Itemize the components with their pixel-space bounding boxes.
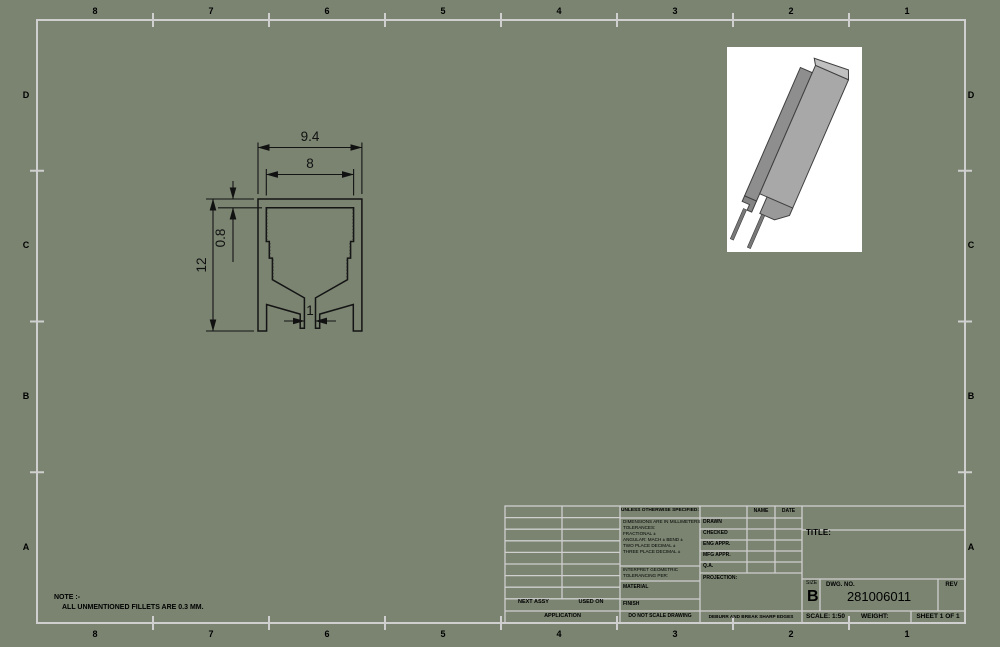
dwg-no-value: 281006011 xyxy=(820,590,938,603)
zone-top-2: 2 xyxy=(783,6,799,16)
used-on-label: USED ON xyxy=(562,600,620,606)
spec-line-tolerances: TOLERANCES: xyxy=(623,526,655,531)
application-label: APPLICATION xyxy=(505,614,620,620)
approval-row-mfg-appr: MFG APPR. xyxy=(703,553,731,558)
title-label: TITLE: xyxy=(806,529,831,537)
zone-bottom-4: 4 xyxy=(551,629,567,639)
zone-left-d: D xyxy=(18,90,34,100)
scale-text: SCALE: 1:50 xyxy=(806,614,845,621)
dim-slot-width: 1 xyxy=(306,303,314,318)
serration-texture xyxy=(267,209,353,278)
zone-left-b: B xyxy=(18,391,34,401)
zone-top-1: 1 xyxy=(899,6,915,16)
zone-top-3: 3 xyxy=(667,6,683,16)
zone-bottom-2: 2 xyxy=(783,629,799,639)
zone-right-c: C xyxy=(963,240,979,250)
spec-line-dimensions: DIMENSIONS ARE IN MILLIMETERS xyxy=(623,520,700,525)
deburr-label: DEBURR AND BREAK SHARP EDGES xyxy=(700,615,802,620)
zone-right-d: D xyxy=(963,90,979,100)
note-heading: NOTE :- xyxy=(54,594,80,601)
do-not-scale-label: DO NOT SCALE DRAWING xyxy=(620,614,700,619)
spec-line-fractional: FRACTIONAL ± xyxy=(623,532,656,537)
sheet-text: SHEET 1 OF 1 xyxy=(911,614,965,621)
dim-inner-width: 8 xyxy=(306,156,314,171)
spec-line-angular: ANGULAR: MACH ± BEND ± xyxy=(623,538,683,543)
zone-bottom-3: 3 xyxy=(667,629,683,639)
drawing-sheet: 9.4 8 12 0.8 1 8 7 6 5 4 3 2 1 8 7 6 5 4… xyxy=(0,0,1000,647)
zone-top-7: 7 xyxy=(203,6,219,16)
weight-text: WEIGHT: xyxy=(861,614,888,621)
note-text: ALL UNMENTIONED FILLETS ARE 0.3 MM. xyxy=(62,604,204,611)
spec-line-two-place: TWO PLACE DECIMAL ± xyxy=(623,544,675,549)
zone-right-a: A xyxy=(963,542,979,552)
size-label: SIZE xyxy=(806,581,817,586)
approval-row-drawn: DRAWN xyxy=(703,520,722,525)
size-value: B xyxy=(807,589,819,605)
spec-line-three-place: THREE PLACE DECIMAL ± xyxy=(623,550,680,555)
zone-bottom-1: 1 xyxy=(899,629,915,639)
dimension-lines xyxy=(206,143,362,332)
dim-overall-width: 9.4 xyxy=(301,129,320,144)
name-header: NAME xyxy=(747,509,775,514)
zone-left-c: C xyxy=(18,240,34,250)
zone-bottom-7: 7 xyxy=(203,629,219,639)
next-assy-label: NEXT ASSY xyxy=(505,600,562,606)
approval-row-checked: CHECKED xyxy=(703,531,728,536)
dwg-no-label: DWG. NO. xyxy=(826,582,855,588)
approval-row-qa: Q.A. xyxy=(703,564,713,569)
interpret-line-1: INTERPRET GEOMETRIC xyxy=(623,568,678,573)
zone-top-4: 4 xyxy=(551,6,567,16)
zone-top-8: 8 xyxy=(87,6,103,16)
zone-right-b: B xyxy=(963,391,979,401)
material-label: MATERIAL xyxy=(623,585,648,590)
interpret-line-2: TOLERANCING PER: xyxy=(623,574,668,579)
zone-top-5: 5 xyxy=(435,6,451,16)
dim-top-wall-thickness: 0.8 xyxy=(213,229,228,248)
dim-overall-height: 12 xyxy=(194,257,209,272)
rev-label: REV xyxy=(938,582,965,588)
zone-bottom-5: 5 xyxy=(435,629,451,639)
projection-label: PROJECTION: xyxy=(703,576,737,581)
drawing-canvas: 9.4 8 12 0.8 1 xyxy=(0,0,1000,647)
spec-header: UNLESS OTHERWISE SPECIFIED: xyxy=(620,509,700,514)
finish-label: FINISH xyxy=(623,602,639,607)
zone-bottom-6: 6 xyxy=(319,629,335,639)
zone-top-6: 6 xyxy=(319,6,335,16)
approval-row-eng-appr: ENG APPR. xyxy=(703,542,730,547)
date-header: DATE xyxy=(775,509,802,514)
zone-bottom-8: 8 xyxy=(87,629,103,639)
zone-left-a: A xyxy=(18,542,34,552)
